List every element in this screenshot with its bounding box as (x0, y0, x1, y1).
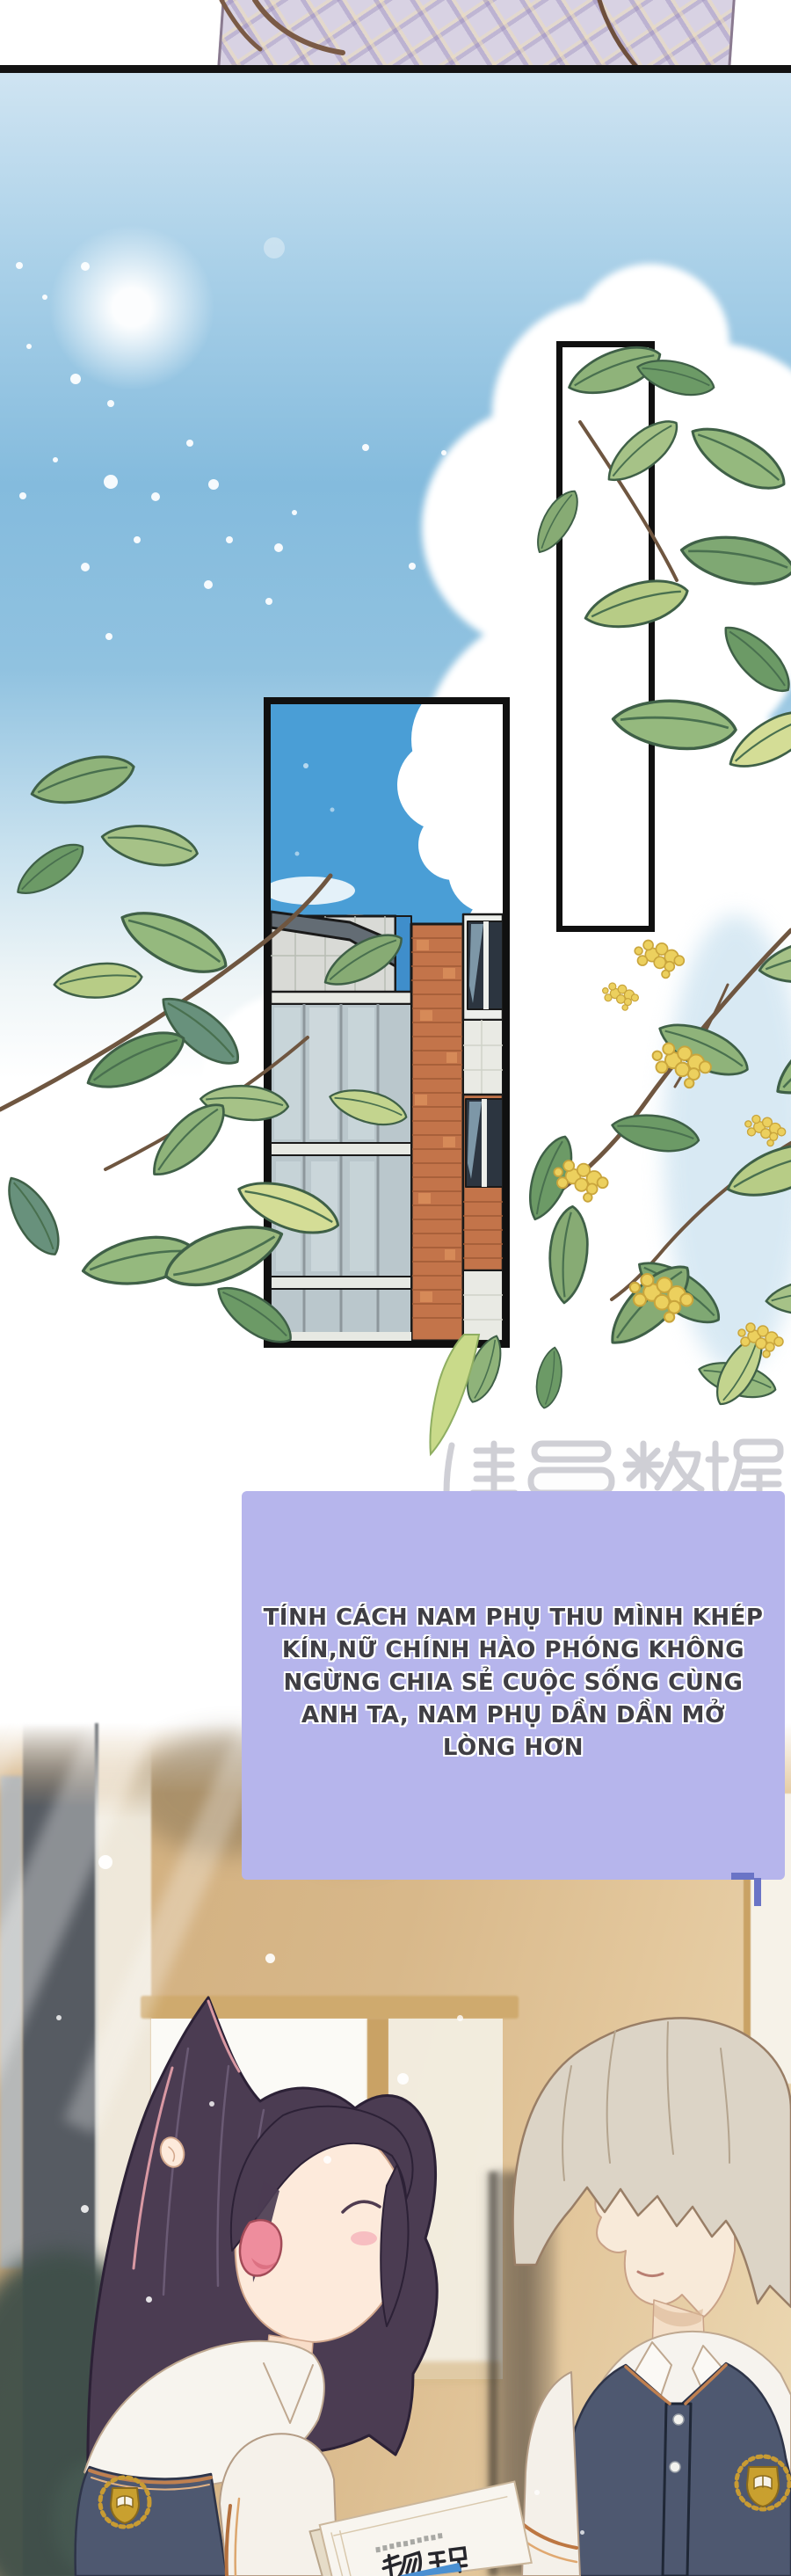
boy-student (513, 2018, 791, 2576)
narration-line: KÍN,NỮ CHÍNH HÀO PHÓNG KHÔNG (282, 1634, 744, 1667)
watermark-glyph-1 (446, 1444, 515, 1493)
hair-strands-top (202, 0, 677, 70)
narration-line: ANH TA, NAM PHỤ DẦN DẦN MỞ (301, 1699, 725, 1732)
narration-line: NGỪNG CHIA SẺ CUỘC SỐNG CÙNG (284, 1667, 744, 1699)
watermark-glyph-3 (626, 1444, 701, 1491)
watermark-glyph-4 (708, 1442, 780, 1495)
characters (0, 1758, 791, 2576)
branches (0, 422, 791, 1299)
narration-line: LÒNG HƠN (443, 1732, 584, 1765)
physics-textbook (307, 2481, 532, 2576)
boy-button (670, 2462, 680, 2472)
book-cover (317, 2481, 532, 2576)
narration-box-tail (754, 1878, 761, 1906)
narration-box: TÍNH CÁCH NAM PHỤ THU MÌNH KHÉP KÍN,NỮ C… (242, 1491, 785, 1880)
boy-vest-placket (663, 2404, 691, 2576)
boy-button (673, 2414, 684, 2425)
girl-blush (351, 2231, 377, 2245)
comic-page: TÍNH CÁCH NAM PHỤ THU MÌNH KHÉP KÍN,NỮ C… (0, 0, 791, 2576)
girl-student (76, 1997, 438, 2576)
narration-box-tail (731, 1873, 754, 1880)
narration-line: TÍNH CÁCH NAM PHỤ THU MÌNH KHÉP (264, 1602, 764, 1634)
watermark-glyph-2 (531, 1444, 612, 1493)
panel-divider-line (0, 65, 791, 73)
